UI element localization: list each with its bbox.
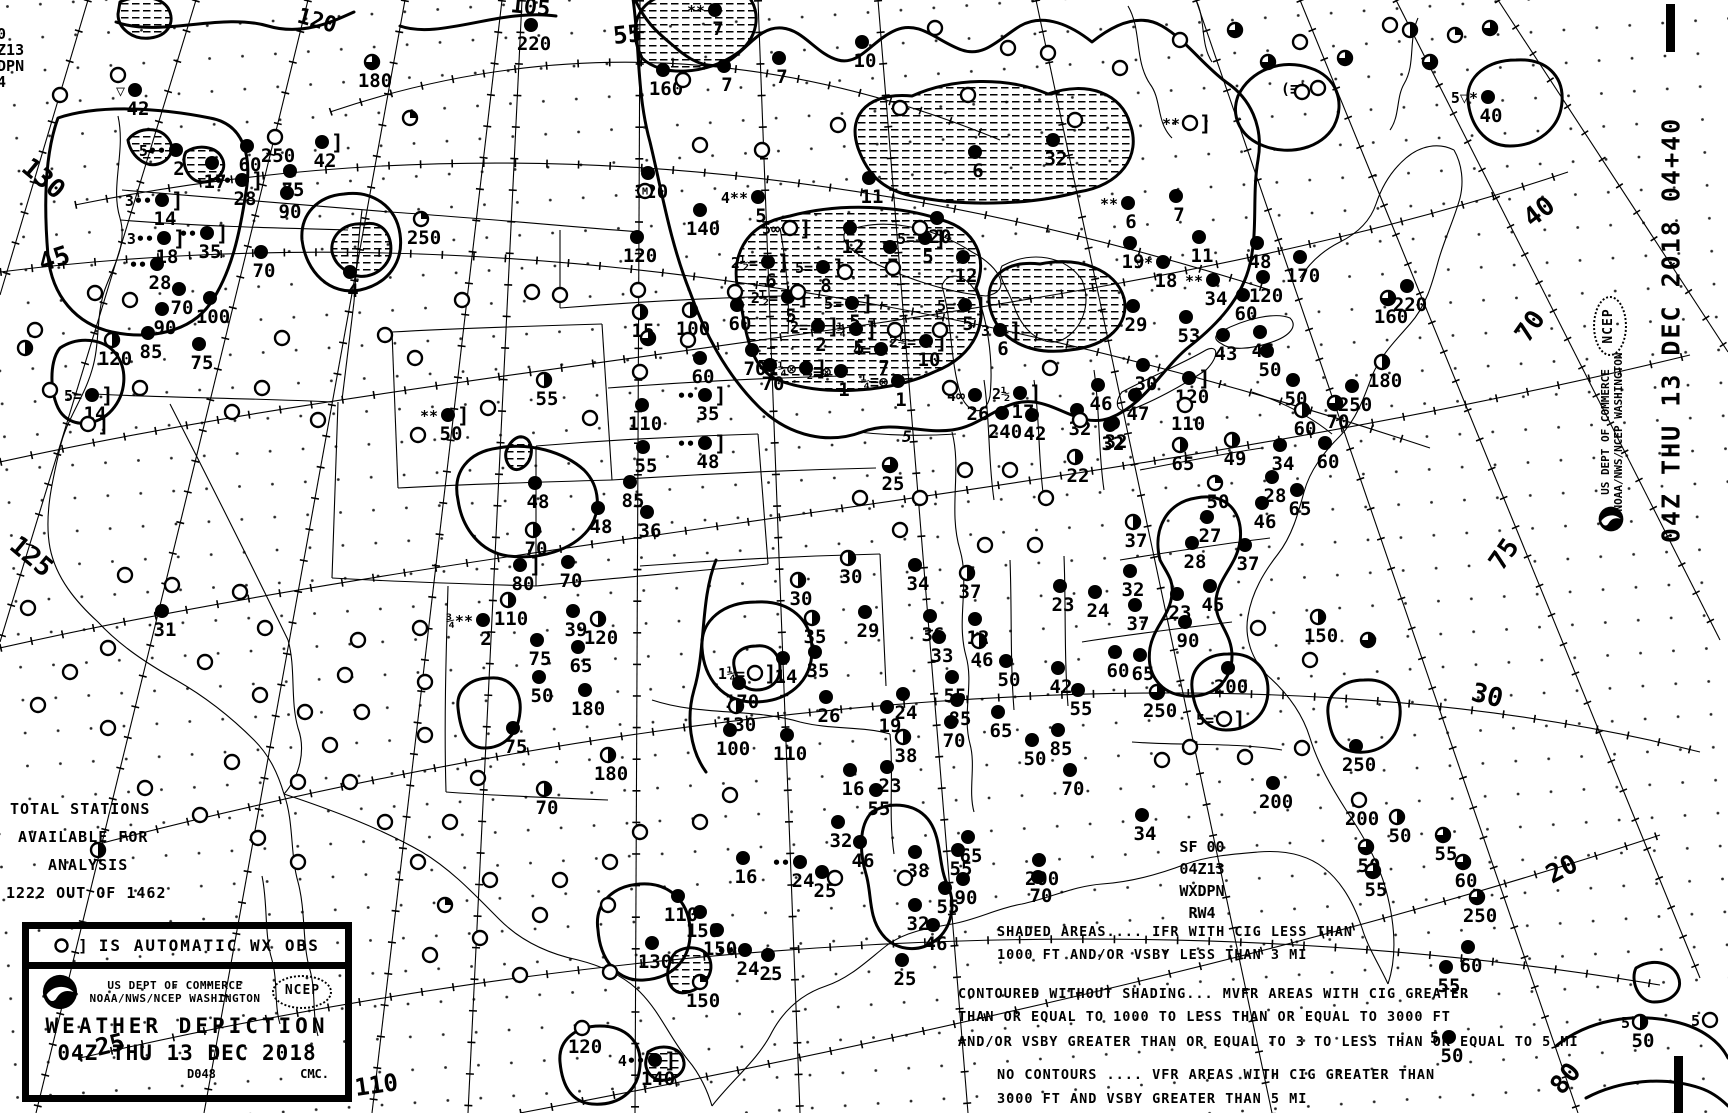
station-text: 4•• [618, 1052, 645, 1070]
station-plot [1483, 21, 1497, 35]
station-text: 250 [261, 145, 295, 167]
station-text: 90 [1177, 630, 1200, 652]
station-text: 35 [804, 626, 827, 648]
station-text: 23 [1052, 594, 1075, 616]
station-text: 3 [981, 322, 990, 340]
note-contoured-2: THAN OR EQUAL TO 1000 TO LESS THAN OR EQ… [958, 1009, 1451, 1025]
station-plot [31, 698, 45, 712]
station-plot [633, 365, 647, 379]
station-plot [791, 285, 805, 299]
station-text: 200 [1025, 868, 1059, 890]
station-text: 49 [1224, 448, 1247, 470]
station-plot [828, 871, 842, 885]
station-text: 6 [997, 338, 1008, 360]
product-id-line: 04Z13 [1158, 858, 1246, 880]
station-text: 65 [1132, 663, 1155, 685]
station-text: 75 [529, 648, 552, 670]
station-text: 26 [818, 705, 841, 727]
station-plot [533, 908, 547, 922]
station-text: 35 [807, 660, 830, 682]
station-text: 4** [721, 189, 748, 207]
station-plot [1383, 18, 1397, 32]
station-text: 46 [1254, 511, 1277, 533]
station-text: 34 [907, 573, 930, 595]
station-text: 12 [842, 236, 865, 258]
station-plot [413, 621, 427, 635]
dept-of-commerce-text: US DEPT OF COMMERCE NOAA/NWS/NCEP WASHIN… [90, 979, 261, 1005]
station-text: 11 [861, 186, 884, 208]
note-nocontours-1: NO CONTOURS .... VFR AREAS WITH CIG GREA… [997, 1067, 1435, 1083]
station-plot [681, 333, 695, 347]
station-text: 70 [943, 730, 966, 752]
station-plot [893, 101, 907, 115]
station-plot [1155, 753, 1169, 767]
station-text: ] [777, 251, 790, 275]
station-plot [133, 381, 147, 395]
product-id-line: W4 [0, 74, 24, 90]
station-plot [1423, 55, 1437, 69]
auto-obs-note: ]IS AUTOMATIC WX OBS [29, 929, 345, 969]
station-plot [418, 728, 432, 742]
station-text: 5 [962, 313, 973, 335]
station-text: ½≡⊗ [804, 363, 831, 381]
station-text: 37 [959, 581, 982, 603]
station-text: ] [1198, 367, 1211, 391]
station-text: ▽ [116, 82, 125, 100]
station-text: 180 [358, 70, 392, 92]
station-text: 5 [1691, 1012, 1700, 1030]
station-text: 60 [1235, 303, 1258, 325]
station-plot [1003, 463, 1017, 477]
station-text: 60 [729, 313, 752, 335]
total-stations-line2: AVAILABLE FOR [18, 828, 148, 846]
station-plot [1041, 46, 1055, 60]
station-text: 30 [790, 588, 813, 610]
station-text: 130 [638, 951, 672, 973]
noaa-logo-margin-icon [1598, 506, 1624, 532]
ncep-logo-margin: NCEP [1593, 296, 1627, 356]
station-text: 42 [1050, 676, 1073, 698]
station-text: 1¼= [718, 665, 745, 683]
station-text: 28 [1184, 551, 1207, 573]
station-plot [893, 523, 907, 537]
station-plot [481, 401, 495, 415]
station-plot [1043, 361, 1057, 375]
station-text: 65 [990, 720, 1013, 742]
station-text: 2 [815, 334, 826, 356]
station-text: ** [420, 407, 438, 425]
station-text: 55 [536, 388, 559, 410]
station-text: 200 [1345, 808, 1379, 830]
station-text: 42 [1024, 423, 1047, 445]
station-plot [513, 968, 527, 982]
station-text: 5= [937, 297, 955, 315]
station-text: •• [214, 172, 232, 190]
station-text: 50 [998, 669, 1021, 691]
station-text: 120 [623, 245, 657, 267]
product-id-line: 4Z13 [0, 42, 24, 58]
station-text: 5▽* [1451, 89, 1478, 107]
station-plot [255, 381, 269, 395]
station-plot [225, 755, 239, 769]
dept-line1: US DEPT OF COMMERCE [90, 979, 261, 992]
station-text: 250 [1143, 700, 1177, 722]
station-circle-icon [54, 938, 69, 953]
total-stations-line4: 1222 OUT OF 1462 [6, 884, 167, 902]
noaa-logo-icon [42, 974, 78, 1010]
station-plot [275, 331, 289, 345]
station-plot [1295, 741, 1309, 755]
station-text: 55 [868, 798, 891, 820]
station-text: •• [129, 256, 147, 274]
dept-line2: NOAA/NWS/NCEP WASHINGTON [1612, 353, 1625, 512]
station-text: ** [1100, 195, 1118, 213]
station-plot [676, 73, 690, 87]
station-text: 60 [1317, 451, 1340, 473]
station-text: 43 [1215, 343, 1238, 365]
station-text: 240 [988, 421, 1022, 443]
station-plot [123, 293, 137, 307]
station-text: ] [764, 662, 777, 686]
station-text: 65 [570, 655, 593, 677]
station-plot [525, 285, 539, 299]
station-text: 55 [635, 455, 658, 477]
station-text: 32 [1045, 148, 1068, 170]
ncep-logo-text: NCEP [1593, 296, 1627, 356]
station-text: 2½= [731, 254, 758, 272]
total-stations-line1: TOTAL STATIONS [10, 800, 150, 818]
station-text: 12 [955, 265, 978, 287]
station-text: 65 [1172, 453, 1195, 475]
dept-line2: NOAA/NWS/NCEP WASHINGTON [90, 992, 261, 1005]
station-text: 220 [517, 33, 551, 55]
station-text: 50 [1259, 359, 1282, 381]
station-text: 60 [1455, 870, 1478, 892]
station-text: 55 [1365, 879, 1388, 901]
station-text: 70 [1062, 778, 1085, 800]
station-plot [473, 931, 487, 945]
margin-bar [1666, 4, 1675, 52]
station-plot [101, 641, 115, 655]
station-text: 140 [686, 218, 720, 240]
station-plot [338, 668, 352, 682]
station-text: 28 [1264, 485, 1287, 507]
station-text: ] [714, 432, 727, 456]
station-text: 85 [140, 341, 163, 363]
station-text: 110 [494, 608, 528, 630]
station-text: ] [101, 384, 114, 408]
station-text: 2½= [751, 289, 778, 307]
station-plot [1261, 55, 1275, 69]
product-id-line: SF 00 [1158, 836, 1246, 858]
station-plot [1073, 413, 1087, 427]
dept-of-commerce-margin: US DEPT OF COMMERCE NOAA/NWS/NCEP WASHIN… [1599, 353, 1625, 512]
station-plot [1293, 35, 1307, 49]
station-text: 8 [820, 275, 831, 297]
weather-depiction-chart: { "legend": { "auto_obs_symbol": "]", "a… [0, 0, 1728, 1113]
station-text: 7 [776, 66, 787, 88]
station-text: 1 [895, 389, 906, 411]
product-id-line: WXDPN [1158, 880, 1246, 902]
station-plot [18, 341, 32, 355]
station-plot [101, 721, 115, 735]
station-text: 20 [929, 226, 952, 248]
station-text: 27 [1199, 525, 1222, 547]
station-text: 200 [1214, 676, 1248, 698]
station-text: 65 [1289, 498, 1312, 520]
station-text: 3•• [125, 192, 152, 210]
station-text: 25 [760, 963, 783, 985]
station-text: 5•• [139, 142, 166, 160]
station-plot [888, 323, 902, 337]
station-plot [831, 118, 845, 132]
station-text: •• [677, 387, 695, 405]
station-text: 150 [1304, 625, 1338, 647]
station-text: 100 [716, 738, 750, 760]
station-text: 250 [1342, 754, 1376, 776]
station-plot [693, 815, 707, 829]
station-text: 2 [480, 628, 491, 650]
note-nocontours-2: 3000 FT AND VSBY GREATER THAN 5 MI [997, 1091, 1307, 1107]
station-plot [298, 705, 312, 719]
station-text: 5= [64, 387, 82, 405]
station-plot [553, 873, 567, 887]
station-text: 5∞ [762, 220, 780, 238]
station-text: ] [97, 413, 110, 437]
product-id-partial: 00 4Z13 XDPN W4 [0, 26, 24, 90]
station-text: 34 [1134, 823, 1157, 845]
station-text: 180 [571, 698, 605, 720]
station-plot [601, 898, 615, 912]
station-text: 29 [1125, 314, 1148, 336]
station-plot [631, 283, 645, 297]
station-text: 85 [1050, 738, 1073, 760]
station-text: •• [717, 942, 735, 960]
station-text: 90 [279, 201, 302, 223]
station-text: 48 [527, 491, 550, 513]
station-text: 60 [692, 366, 715, 388]
station-text: 37 [1125, 530, 1148, 552]
station-text: 200 [1259, 791, 1293, 813]
valid-time: 04Z THU 13 DEC 2018 [29, 1041, 345, 1065]
station-text: ** [687, 2, 705, 20]
station-text: 42 [127, 98, 150, 120]
station-plot [443, 815, 457, 829]
station-text: 50 [1632, 1030, 1655, 1052]
station-text: 11 [1191, 245, 1214, 267]
station-text: ¼ [837, 321, 846, 339]
station-text: ] [714, 384, 727, 408]
station-plot [898, 871, 912, 885]
station-plot [165, 578, 179, 592]
station-plot [291, 775, 305, 789]
station-plot [1228, 23, 1242, 37]
station-text: ] [457, 404, 470, 428]
station-text: 70 [1327, 411, 1350, 433]
station-text: 50 [1207, 491, 1230, 513]
station-text: 32 [830, 830, 853, 852]
station-text: 38 [895, 745, 918, 767]
station-plot [291, 855, 305, 869]
station-text: 48 [1249, 251, 1272, 273]
station-plot [88, 286, 102, 300]
station-plot [943, 381, 957, 395]
station-text: 16 [842, 778, 865, 800]
station-text: 24 [792, 870, 815, 892]
station-plot: M [638, 184, 652, 198]
station-text: •• [772, 854, 790, 872]
station-text: ] [865, 318, 878, 342]
station-plot [958, 463, 972, 477]
grid-label: 55 [612, 19, 644, 50]
station-plot [43, 383, 57, 397]
station-plot [1303, 653, 1317, 667]
station-text: 170 [1286, 265, 1320, 287]
margin-bar [1674, 1056, 1683, 1113]
station-plot [853, 491, 867, 505]
auto-obs-text: IS AUTOMATIC WX OBS [99, 936, 320, 955]
station-text: 34 [1272, 453, 1295, 475]
station-text: 60 [1294, 418, 1317, 440]
station-plot [351, 633, 365, 647]
station-text: ▽* [1135, 254, 1153, 272]
station-plot [838, 265, 852, 279]
station-text: ] [173, 227, 186, 251]
station-plot [408, 351, 422, 365]
station-text: 22 [1067, 465, 1090, 487]
station-text: 7 [712, 18, 723, 40]
station-plot [63, 665, 77, 679]
station-text: 50 [1389, 825, 1412, 847]
station-plot [418, 675, 432, 689]
station-plot [21, 601, 35, 615]
station-text: ** [1162, 115, 1180, 133]
station-text: 31 [154, 619, 177, 641]
station-plot [913, 221, 927, 235]
station-plot [411, 855, 425, 869]
station-text: 55 [937, 896, 960, 918]
station-text: 36 [639, 520, 662, 542]
station-text: 70 [171, 297, 194, 319]
station-text: ] [171, 189, 184, 213]
station-text: 5= [1196, 711, 1214, 729]
station-text: 37 [1127, 613, 1150, 635]
dept-line1: US DEPT OF COMMERCE [1599, 353, 1612, 512]
station-text: 2 [173, 158, 184, 180]
station-text: 120 [568, 1036, 602, 1058]
station-text: 70 [560, 570, 583, 592]
station-plot [198, 655, 212, 669]
station-plot [603, 855, 617, 869]
code-d048: D048 [187, 1067, 216, 1081]
station-plot [343, 775, 357, 789]
grid-label: 5 [902, 427, 912, 446]
station-text: 25 [894, 968, 917, 990]
station-text: 2½ [992, 385, 1010, 403]
station-plot [28, 323, 42, 337]
station-text: 4= [853, 341, 871, 359]
station-text: 18 [1155, 270, 1178, 292]
station-plot [53, 88, 67, 102]
station-text: 150 [686, 990, 720, 1012]
station-text: 10 [854, 50, 877, 72]
station-text: ] [529, 554, 542, 578]
station-plot [111, 68, 125, 82]
station-text: ] [1199, 112, 1212, 136]
station-text: 5= [824, 295, 842, 313]
station-plot [1113, 61, 1127, 75]
station-text: 46 [971, 649, 994, 671]
station-plot [755, 143, 769, 157]
note-contoured-3: AND/OR VSBY GREATER THAN OR EQUAL TO 3 T… [958, 1034, 1579, 1050]
station-plot [641, 331, 655, 345]
station-text: 180 [1368, 370, 1402, 392]
station-plot [251, 831, 265, 845]
station-text: 160 [1374, 306, 1408, 328]
station-text: 6 [1125, 211, 1136, 233]
station-text: 7 [721, 74, 732, 96]
station-text: ] [1233, 708, 1246, 732]
note-contoured-1: CONTOURED WITHOUT SHADING... MVFR AREAS … [958, 986, 1469, 1002]
station-text: ] [1029, 382, 1042, 406]
station-plot [193, 808, 207, 822]
station-text: ¼≡⊗ [861, 373, 888, 391]
station-text: 110 [628, 413, 662, 435]
station-text: 37 [1237, 553, 1260, 575]
station-text: 7 [1173, 204, 1184, 226]
station-text: 1¼⊗ [769, 360, 796, 378]
code-cmc: CMC. [300, 1067, 329, 1081]
station-text: 5 [1621, 1014, 1630, 1032]
station-text: 30 [840, 566, 863, 588]
station-text: 46 [1090, 393, 1113, 415]
station-text: 5 [922, 246, 933, 268]
station-plot [1403, 23, 1417, 37]
station-text: 60 [1107, 660, 1130, 682]
total-stations-line3: ANALYSIS [48, 856, 128, 874]
station-text: 28 [149, 272, 172, 294]
station-text: 25 [882, 473, 905, 495]
station-plot [138, 781, 152, 795]
chart-title: WEATHER DEPICTION [29, 1014, 345, 1038]
station-plot [378, 815, 392, 829]
station-plot [1173, 33, 1187, 47]
station-text: 29 [857, 620, 880, 642]
station-plot [1028, 538, 1042, 552]
station-text: 14 [775, 666, 798, 688]
product-id-block: SF 00 04Z13 WXDPN RW4 [1158, 836, 1246, 924]
station-plot [693, 138, 707, 152]
station-plot [1001, 41, 1015, 55]
station-plot [978, 538, 992, 552]
station-text: 250 [1463, 905, 1497, 927]
station-text: 40 [1480, 105, 1503, 127]
station-plot [553, 288, 567, 302]
station-plot [471, 771, 485, 785]
station-text: 55 [1070, 698, 1093, 720]
station-text: ] [974, 294, 987, 318]
margin-timestamp: 04Z THU 13 DEC 2018 04+40 [1657, 117, 1686, 543]
station-plot [411, 428, 425, 442]
station-plot [311, 413, 325, 427]
station-text: 70 [536, 797, 559, 819]
station-plot [438, 898, 452, 912]
station-text: 60 [1460, 955, 1483, 977]
svg-text:M: M [642, 187, 648, 198]
station-text: 5= [795, 259, 813, 277]
station-plot [961, 88, 975, 102]
station-plot [723, 788, 737, 802]
